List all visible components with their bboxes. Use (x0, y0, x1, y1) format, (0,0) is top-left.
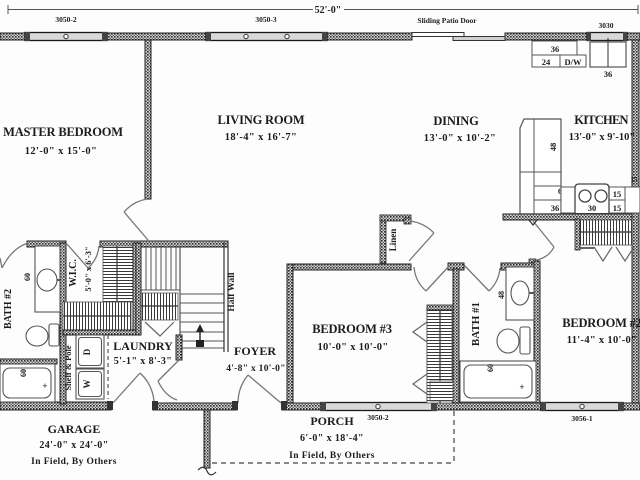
svg-text:Shelf & Pole: Shelf & Pole (63, 345, 73, 391)
svg-text:Sliding Patio Door: Sliding Patio Door (417, 16, 477, 25)
svg-text:BATH #1: BATH #1 (470, 302, 482, 346)
svg-text:3050-3: 3050-3 (255, 15, 276, 24)
svg-text:FOYER: FOYER (234, 344, 276, 358)
svg-text:D: D (82, 348, 92, 355)
svg-text:48: 48 (548, 143, 558, 152)
svg-text:W: W (82, 380, 92, 389)
svg-text:60: 60 (23, 273, 32, 281)
svg-text:4'-8" x 10'-0": 4'-8" x 10'-0" (226, 364, 286, 374)
svg-text:60: 60 (486, 364, 495, 372)
svg-text:11'-4" x 10'-0": 11'-4" x 10'-0" (567, 335, 637, 346)
svg-text:3056-1: 3056-1 (571, 414, 592, 423)
svg-text:3030: 3030 (599, 21, 614, 30)
svg-text:36: 36 (604, 69, 613, 79)
svg-text:24: 24 (542, 57, 551, 67)
svg-text:LIVING ROOM: LIVING ROOM (217, 113, 304, 127)
svg-text:24'-0" x 24'-0": 24'-0" x 24'-0" (39, 440, 108, 451)
svg-text:5'-0" x 6'-3": 5'-0" x 6'-3" (83, 246, 93, 291)
svg-text:60: 60 (19, 369, 28, 377)
svg-text:+: + (42, 381, 47, 391)
svg-text:6'-0" x 18'-4": 6'-0" x 18'-4" (300, 433, 364, 444)
svg-text:KITCHEN: KITCHEN (574, 113, 628, 127)
svg-text:36: 36 (551, 203, 560, 213)
svg-text:BEDROOM #3: BEDROOM #3 (312, 322, 392, 336)
svg-text:W.I.C.: W.I.C. (68, 259, 79, 287)
svg-text:15: 15 (613, 189, 622, 199)
svg-text:10'-0" x 10'-0": 10'-0" x 10'-0" (318, 342, 389, 353)
svg-text:GARAGE: GARAGE (48, 422, 101, 436)
svg-text:+: + (519, 382, 524, 392)
svg-text:Half Wall: Half Wall (227, 272, 237, 312)
svg-text:18'-4" x 16'-7": 18'-4" x 16'-7" (225, 132, 298, 143)
svg-text:12'-0" x 15'-0": 12'-0" x 15'-0" (25, 146, 98, 157)
svg-text:LAUNDRY: LAUNDRY (113, 339, 173, 353)
svg-text:13'-0" x 10'-2": 13'-0" x 10'-2" (424, 133, 497, 144)
svg-text:MASTER BEDROOM: MASTER BEDROOM (3, 125, 123, 139)
svg-text:48: 48 (497, 291, 506, 299)
svg-text:30: 30 (588, 203, 597, 213)
svg-text:In Field, By Others: In Field, By Others (31, 457, 117, 467)
svg-text:BATH #2: BATH #2 (3, 289, 14, 329)
svg-text:5'-1" x 8'-3": 5'-1" x 8'-3" (114, 356, 173, 367)
svg-text:BEDROOM #2: BEDROOM #2 (562, 316, 640, 330)
svg-text:In Field, By Others: In Field, By Others (289, 451, 375, 461)
svg-text:Linen: Linen (388, 229, 398, 252)
svg-text:D/W: D/W (565, 57, 583, 67)
svg-text:13'-0" x 9'-10": 13'-0" x 9'-10" (569, 132, 636, 143)
svg-text:52'-0": 52'-0" (315, 5, 342, 16)
svg-text:36: 36 (551, 44, 560, 54)
svg-text:DINING: DINING (433, 114, 479, 128)
svg-text:15: 15 (631, 176, 639, 184)
svg-text:15: 15 (613, 203, 622, 213)
svg-text:PORCH: PORCH (310, 414, 354, 428)
svg-text:3050-2: 3050-2 (55, 15, 76, 24)
svg-text:3050-2: 3050-2 (367, 413, 388, 422)
